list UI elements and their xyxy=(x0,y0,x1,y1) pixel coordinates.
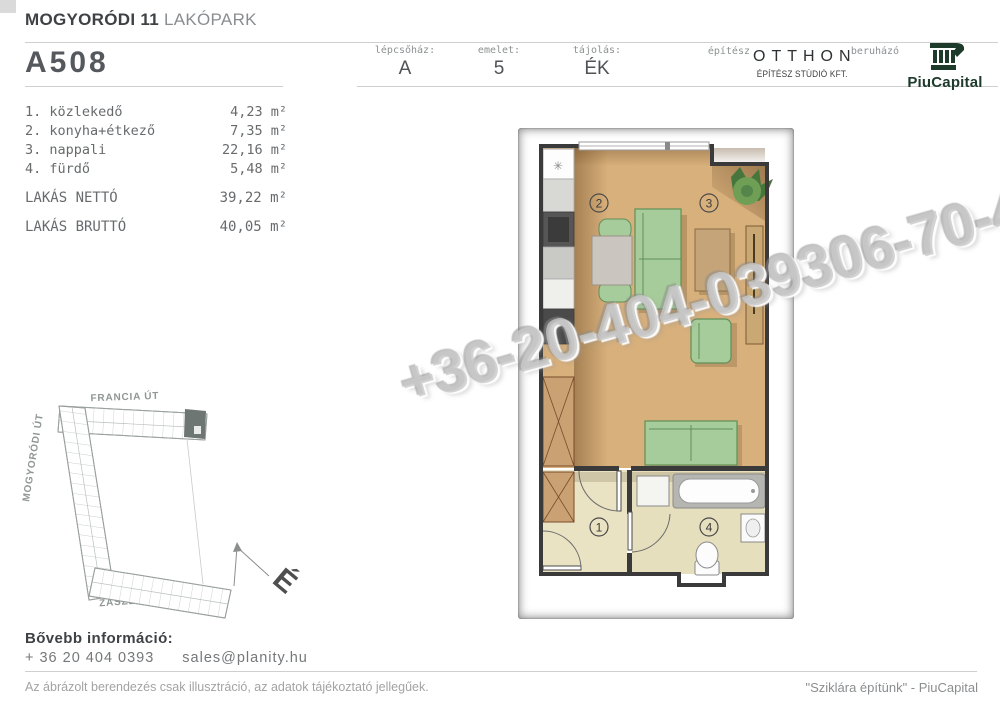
site-plan: FRANCIA ÚT MOGYORÓDI ÚT ZÁSZLÓS U. É xyxy=(15,384,305,620)
floor-label: emelet: xyxy=(449,45,549,56)
piucapital-column-icon xyxy=(922,40,968,73)
compass-letter: É xyxy=(267,561,304,600)
architect-label: építész xyxy=(698,46,750,57)
toilet xyxy=(695,542,719,575)
gross-area-value: 40,05 m² xyxy=(220,218,287,237)
room-area: 7,35 m² xyxy=(230,122,287,141)
net-area-value: 39,22 m² xyxy=(220,189,287,208)
armchair xyxy=(691,319,737,367)
project-name: MOGYORÓDI 11 xyxy=(25,10,159,29)
room-area: 5,48 m² xyxy=(230,160,287,179)
floor-plan-drawing: ✳ xyxy=(519,129,793,618)
cooktop-icon: ✳ xyxy=(553,159,563,173)
footer-divider xyxy=(25,671,977,672)
apartment-code: A508 xyxy=(25,46,109,80)
wall-shadow-left xyxy=(574,148,608,468)
room-area: 22,16 m² xyxy=(222,141,287,160)
company-slogan: "Sziklára építünk" - PiuCapital xyxy=(805,680,978,695)
bathtub xyxy=(673,474,765,508)
room-4-badge: 4 xyxy=(706,521,713,535)
unit-code-underline xyxy=(25,86,283,87)
entry-door-leaf xyxy=(746,226,763,344)
room-num: 2. xyxy=(25,123,41,139)
room-num: 1. xyxy=(25,104,41,120)
room-2-badge: 2 xyxy=(596,197,603,211)
gross-area-label: LAKÁS BRUTTÓ xyxy=(25,218,126,237)
staircase-label: lépcsőház: xyxy=(355,45,455,56)
header-cell-orientation: tájolás: ÉK xyxy=(547,42,647,86)
built-in-wardrobes xyxy=(543,377,574,522)
room-label: közlekedő xyxy=(49,104,122,120)
room-row: 1. közlekedő 4,23 m² xyxy=(25,103,287,122)
developer-logo: PiuCapital xyxy=(905,40,985,91)
room-1-badge: 1 xyxy=(596,521,603,535)
architect-subtitle: ÉPÍTÉSZ STÚDIÓ KFT. xyxy=(757,69,843,79)
architect-logo: OTTHON ÉPÍTÉSZ STÚDIÓ KFT. xyxy=(753,48,847,79)
street-label-top: FRANCIA ÚT xyxy=(90,389,159,404)
page-title: MOGYORÓDI 11 LAKÓPARK xyxy=(25,10,257,30)
wardrobe xyxy=(695,229,735,295)
windows xyxy=(579,142,709,150)
room-name: 1. közlekedő xyxy=(25,103,123,122)
contact-heading: Bővebb információ: xyxy=(25,630,173,647)
room-list: 1. közlekedő 4,23 m² 2. konyha+étkező 7,… xyxy=(25,103,287,237)
sofa-horizontal xyxy=(645,421,742,467)
room-name: 2. konyha+étkező xyxy=(25,122,155,141)
contact-row: + 36 20 404 0393 sales@planity.hu xyxy=(25,650,308,666)
room-row: 3. nappali 22,16 m² xyxy=(25,141,287,160)
room-name: 3. nappali xyxy=(25,141,106,160)
project-suffix: LAKÓPARK xyxy=(164,10,257,29)
washing-machine xyxy=(637,476,669,506)
disclaimer-text: Az ábrázolt berendezés csak illusztráció… xyxy=(25,680,429,694)
orientation-value: ÉK xyxy=(547,58,647,80)
room-label: fürdő xyxy=(49,161,90,177)
developer-label: beruházó xyxy=(848,46,902,57)
gross-area-row: LAKÁS BRUTTÓ 40,05 m² xyxy=(25,218,287,237)
net-area-row: LAKÁS NETTÓ 39,22 m² xyxy=(25,189,287,208)
sink xyxy=(741,514,765,542)
room-label: nappali xyxy=(49,142,106,158)
room-area: 4,23 m² xyxy=(230,103,287,122)
floor-plan-image: ✳ xyxy=(518,128,794,619)
developer-name: PiuCapital xyxy=(905,74,985,91)
header-divider-bottom xyxy=(357,86,998,87)
orientation-label: tájolás: xyxy=(547,45,647,56)
contact-phone[interactable]: + 36 20 404 0393 xyxy=(25,650,154,666)
north-arrow: É xyxy=(233,542,304,600)
courtyard-edge xyxy=(187,439,203,584)
sofa-vertical xyxy=(635,209,687,313)
header-cell-staircase: lépcsőház: A xyxy=(355,42,455,86)
room-3-badge: 3 xyxy=(706,197,713,211)
street-label-left: MOGYORÓDI ÚT xyxy=(19,412,46,502)
room-label: konyha+étkező xyxy=(49,123,155,139)
room-name: 4. fürdő xyxy=(25,160,90,179)
building-outline xyxy=(58,406,231,618)
room-num: 4. xyxy=(25,161,41,177)
header-cell-floor: emelet: 5 xyxy=(449,42,549,86)
contact-email[interactable]: sales@planity.hu xyxy=(182,650,308,666)
room-row: 2. konyha+étkező 7,35 m² xyxy=(25,122,287,141)
kitchen-cabinets: ✳ xyxy=(543,149,574,344)
highlighted-unit xyxy=(184,409,206,439)
room-num: 3. xyxy=(25,142,41,158)
floor-value: 5 xyxy=(449,58,549,80)
architect-name: OTTHON xyxy=(753,48,847,66)
staircase-value: A xyxy=(355,58,455,80)
scan-artifact xyxy=(0,0,16,13)
room-row: 4. fürdő 5,48 m² xyxy=(25,160,287,179)
net-area-label: LAKÁS NETTÓ xyxy=(25,189,118,208)
